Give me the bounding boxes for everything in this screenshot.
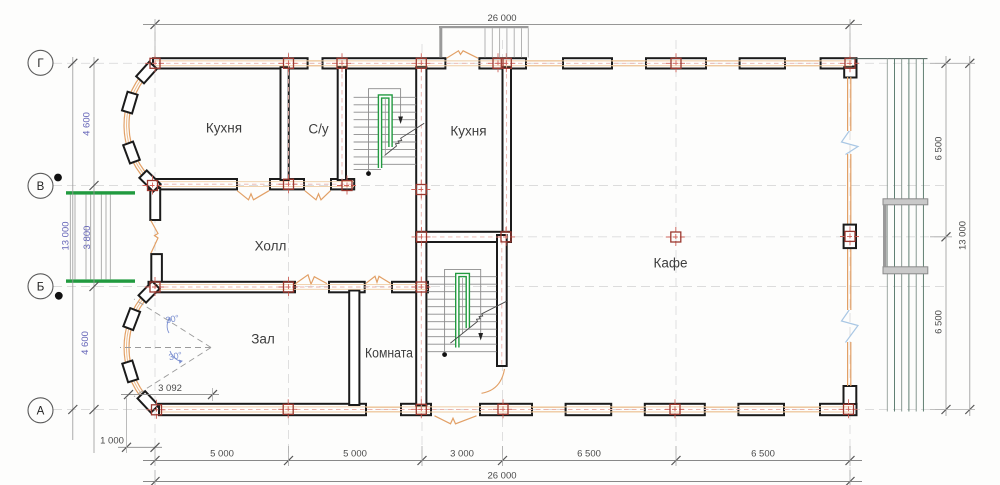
svg-text:С/у: С/у — [308, 122, 329, 137]
svg-text:Зал: Зал — [251, 332, 275, 347]
svg-text:3 000: 3 000 — [450, 449, 474, 460]
svg-text:Б: Б — [37, 281, 45, 293]
svg-text:26 000: 26 000 — [487, 13, 516, 24]
svg-text:Кухня: Кухня — [450, 124, 486, 139]
svg-text:4 600: 4 600 — [80, 331, 91, 355]
svg-text:6 500: 6 500 — [577, 449, 601, 460]
svg-text:6 500: 6 500 — [934, 137, 945, 161]
svg-text:13 000: 13 000 — [958, 221, 969, 250]
svg-text:5 000: 5 000 — [343, 449, 367, 460]
svg-text:6 500: 6 500 — [934, 310, 945, 334]
svg-text:Г: Г — [37, 58, 44, 70]
svg-text:5 000: 5 000 — [210, 449, 234, 460]
svg-text:Холл: Холл — [255, 239, 287, 254]
svg-text:1 000: 1 000 — [100, 436, 124, 447]
svg-text:Кухня: Кухня — [206, 121, 242, 136]
svg-text:Кафе: Кафе — [654, 256, 688, 271]
svg-text:3 092: 3 092 — [158, 383, 182, 394]
svg-text:В: В — [37, 181, 45, 193]
svg-text:Комната: Комната — [365, 346, 413, 361]
svg-text:4 600: 4 600 — [82, 112, 93, 136]
svg-text:3 800: 3 800 — [82, 226, 93, 250]
svg-text:13 000: 13 000 — [61, 221, 72, 250]
svg-text:26 000: 26 000 — [487, 471, 516, 482]
svg-text:А: А — [37, 405, 45, 417]
svg-text:6 500: 6 500 — [751, 449, 775, 460]
